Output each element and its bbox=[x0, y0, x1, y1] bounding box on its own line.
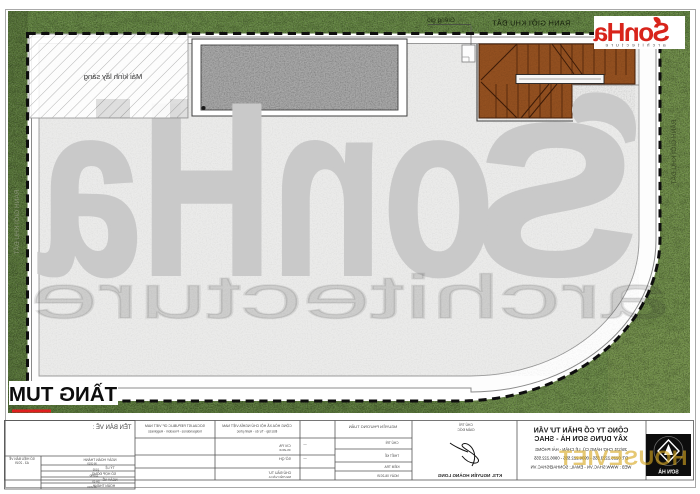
svg-text:Giếng gió: Giếng gió bbox=[427, 15, 455, 24]
svg-text:SỞ QH: SỞ QH bbox=[279, 456, 291, 461]
svg-text:NGUYỄN VĂN A: NGUYỄN VĂN A bbox=[269, 474, 292, 479]
svg-text:TÊN BẢN VẼ :: TÊN BẢN VẼ : bbox=[92, 423, 131, 431]
svg-text:Mái kính lấy sáng: Mái kính lấy sáng bbox=[84, 72, 142, 81]
svg-text:NGÀY VẼ: NGÀY VẼ bbox=[102, 477, 118, 482]
svg-text:TẦNG TUM: TẦNG TUM bbox=[9, 383, 117, 406]
svg-text:125/HĐ: 125/HĐ bbox=[89, 474, 98, 478]
svg-text:KTS. NGUYỄN HOÀNG LONG: KTS. NGUYỄN HOÀNG LONG bbox=[437, 472, 502, 478]
svg-text:06-2019: 06-2019 bbox=[279, 448, 290, 452]
svg-text:06-2019: 06-2019 bbox=[87, 462, 97, 466]
svg-text:SOCIALIST REPUBLIC OF VIET NAM: SOCIALIST REPUBLIC OF VIET NAM bbox=[145, 424, 205, 428]
svg-text:THIẾT KẾ: THIẾT KẾ bbox=[385, 453, 399, 458]
svg-text:CỘNG HÒA XÃ HỘI CHỦ NGHĨA VIỆT: CỘNG HÒA XÃ HỘI CHỦ NGHĨA VIỆT NAM bbox=[222, 423, 292, 428]
svg-text:GIÁM ĐỐC: GIÁM ĐỐC bbox=[457, 427, 475, 432]
svg-text:architecture: architecture bbox=[602, 43, 665, 49]
svg-text:architecture: architecture bbox=[30, 263, 670, 331]
svg-text:1/100: 1/100 bbox=[92, 468, 99, 472]
svg-text:CHỦ TRÌ: CHỦ TRÌ bbox=[385, 440, 398, 445]
svg-text:XÂY DỰNG SƠN HÀ - SHAC: XÂY DỰNG SƠN HÀ - SHAC bbox=[534, 434, 627, 443]
svg-text:Independence - Freedom - Happi: Independence - Freedom - Happiness bbox=[148, 430, 202, 434]
svg-text:CHỦ TRÌ: CHỦ TRÌ bbox=[459, 422, 473, 427]
svg-text:NGUYỄN PHƯƠNG TUẤN: NGUYỄN PHƯƠNG TUẤN bbox=[349, 424, 398, 429]
svg-text:HOUSEVIET: HOUSEVIET bbox=[559, 446, 688, 470]
svg-text:NGÀY HOÀN THÀNH: NGÀY HOÀN THÀNH bbox=[83, 458, 116, 462]
svg-text:NGÀY 06-2019: NGÀY 06-2019 bbox=[377, 474, 399, 478]
svg-text:Độc lập - Tự do - Hạnh phúc: Độc lập - Tự do - Hạnh phúc bbox=[236, 430, 277, 434]
svg-text:06-2019: 06-2019 bbox=[87, 485, 97, 489]
svg-text:KIỂM TRA: KIỂM TRA bbox=[384, 464, 400, 469]
svg-text:SH-19: SH-19 bbox=[92, 480, 100, 484]
svg-text:TỶ LỆ: TỶ LỆ bbox=[105, 465, 115, 470]
svg-text:A3 - 2019: A3 - 2019 bbox=[15, 461, 29, 465]
svg-text:RANH GIỚI KHU ĐẤT: RANH GIỚI KHU ĐẤT bbox=[492, 18, 571, 28]
